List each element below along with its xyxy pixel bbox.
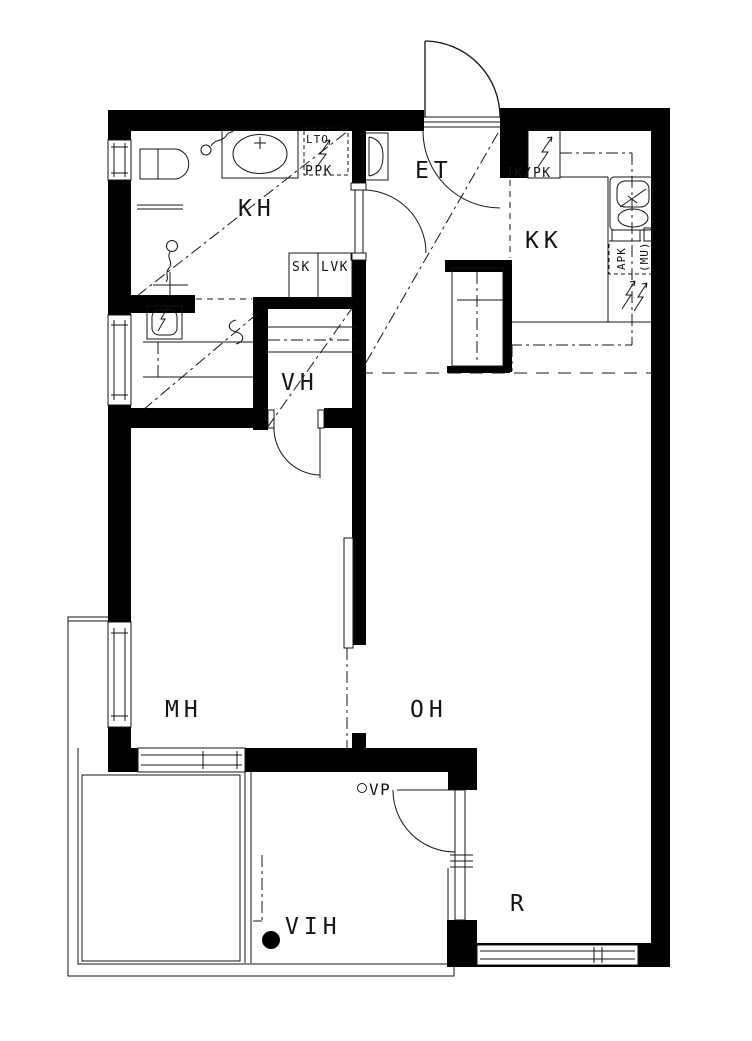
label-sk: SK (292, 260, 311, 275)
hall-closet (452, 268, 503, 366)
label-mu: (MU) (638, 242, 651, 273)
room-label-et: ET (415, 158, 453, 184)
label-vp: VP (369, 780, 391, 799)
doors (268, 41, 500, 852)
room-label-vh: VH (281, 370, 319, 396)
room-label-r: R (510, 891, 529, 917)
window-sauna-west (108, 315, 131, 405)
room-label-kh: KH (238, 196, 276, 222)
electric-symbol (622, 281, 635, 309)
kitchen-duct-lines (510, 153, 632, 371)
vh-shelves (268, 327, 358, 352)
toilet (140, 149, 189, 179)
label-apk: APK (615, 247, 628, 270)
balcony-centerline (253, 855, 262, 921)
balcony-column-dot (262, 931, 280, 949)
electric-symbol (634, 283, 647, 311)
floor-plan-page: KH ET KK VH MH OH VIH R LTO PPK SK LVK J… (0, 0, 752, 1041)
label-jkpk: JK/PK (505, 166, 552, 181)
sink-basin (617, 181, 649, 207)
washbasin (201, 130, 298, 178)
balcony-divider (245, 772, 251, 963)
floor-plan-drawing: KH ET KK VH MH OH VIH R LTO PPK SK LVK J… (0, 0, 752, 1041)
window-r-south (477, 945, 638, 965)
window-r-west (450, 790, 473, 920)
fixture-labels: LTO PPK SK LVK JK/PK APK (MU) VP (292, 133, 651, 799)
window-mh-south (138, 748, 245, 772)
sink-basin-round (618, 209, 648, 227)
room-label-kk: KK (525, 228, 563, 254)
reference-lines (137, 131, 651, 428)
label-lvk: LVK (321, 260, 349, 275)
window-mh-west (108, 622, 131, 727)
room-label-oh: OH (410, 697, 448, 723)
label-lto: LTO (306, 133, 329, 146)
tap-symbol (620, 189, 646, 207)
room-label-vih: VIH (285, 914, 342, 940)
electric-symbol (538, 137, 552, 167)
towel-rail (137, 205, 183, 209)
et-cabinet (363, 133, 388, 180)
room-label-mh: MH (165, 697, 203, 723)
mh-sliding-door (344, 538, 353, 750)
vp-marker-circle (358, 784, 367, 793)
windows (108, 140, 638, 965)
vh-door (268, 410, 324, 478)
label-ppk: PPK (305, 164, 333, 179)
window-kh-west (108, 140, 131, 180)
walls (108, 108, 670, 967)
kh-door (351, 183, 426, 260)
shower (153, 241, 252, 300)
balcony-left-section (82, 775, 240, 961)
